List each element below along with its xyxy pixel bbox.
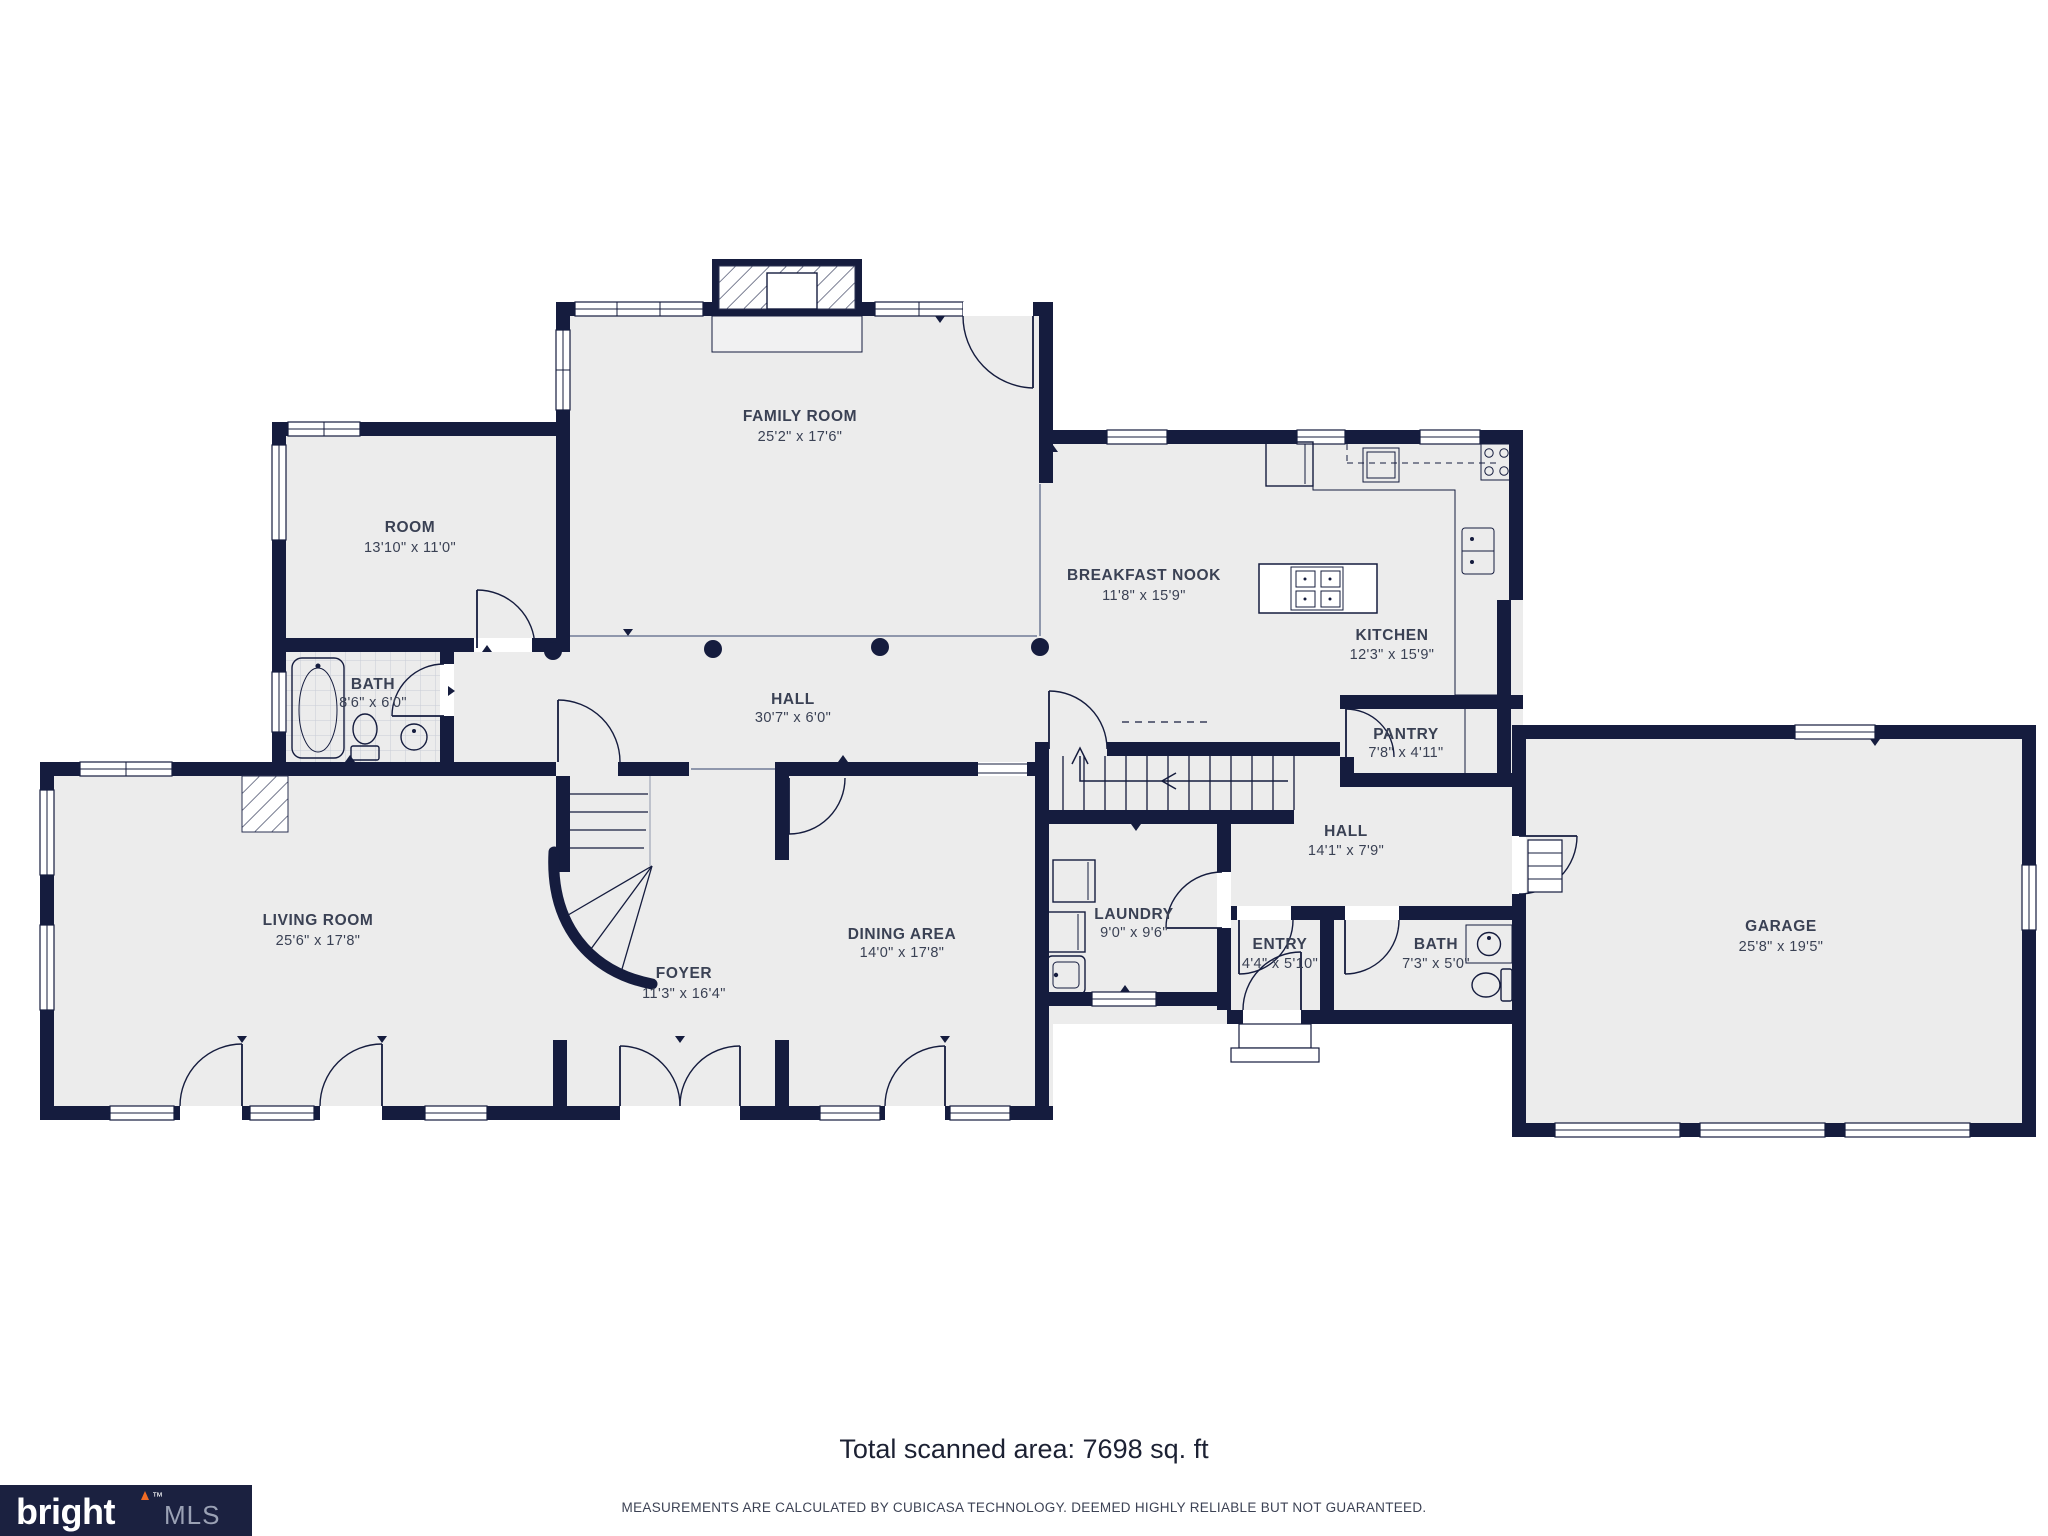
window (575, 302, 703, 316)
window (288, 422, 360, 436)
dims-garage: 25'8" x 19'5" (1739, 939, 1824, 955)
floor-plan-drawing: FAMILY ROOM 25'2" x 17'6" ROOM 13'10" x … (0, 0, 2048, 1536)
dims-bath-hall: 7'3" x 5'0" (1402, 956, 1470, 972)
disclaimer-text: MEASUREMENTS ARE CALCULATED BY CUBICASA … (622, 1500, 1427, 1515)
dims-pantry: 7'8" x 4'11" (1368, 745, 1443, 761)
dims-breakfast-nook: 11'8" x 15'9" (1102, 588, 1186, 604)
window (425, 1106, 487, 1120)
label-family-room: FAMILY ROOM (743, 408, 857, 425)
window (556, 330, 570, 410)
living-room-chimney (242, 776, 288, 832)
dims-hall-rear: 14'1" x 7'9" (1308, 843, 1384, 859)
front-porch-steps (1231, 1024, 1319, 1062)
logo-brand-text: bright (16, 1491, 115, 1532)
window (2022, 865, 2036, 930)
label-bath-hall: BATH (1414, 936, 1458, 953)
dims-room: 13'10" x 11'0" (364, 540, 456, 556)
logo-mls-text: MLS (164, 1500, 220, 1530)
bright-mls-logo: bright ™ MLS (0, 1485, 252, 1536)
window (1092, 992, 1156, 1006)
window (1107, 430, 1167, 444)
label-entry: ENTRY (1253, 936, 1308, 953)
dims-kitchen: 12'3" x 15'9" (1350, 647, 1435, 663)
label-kitchen: KITCHEN (1355, 627, 1428, 644)
label-breakfast-nook: BREAKFAST NOOK (1067, 567, 1221, 584)
window (950, 1106, 1010, 1120)
label-laundry: LAUNDRY (1094, 906, 1173, 923)
window (40, 790, 54, 875)
garage-door (1555, 1123, 1680, 1137)
dims-living-room: 25'6" x 17'8" (276, 933, 361, 949)
window (820, 1106, 880, 1120)
logo-tm-text: ™ (152, 1491, 163, 1503)
window (1795, 725, 1875, 739)
label-pantry: PANTRY (1373, 726, 1439, 743)
label-dining-area: DINING AREA (848, 926, 957, 943)
window (875, 302, 963, 316)
window (250, 1106, 314, 1120)
label-room: ROOM (385, 519, 436, 536)
window (40, 925, 54, 1010)
label-living-room: LIVING ROOM (263, 912, 374, 929)
window (110, 1106, 174, 1120)
total-area-text: Total scanned area: 7698 sq. ft (839, 1434, 1209, 1464)
garage-door (1845, 1123, 1970, 1137)
dims-laundry: 9'0" x 9'6" (1100, 925, 1168, 941)
cased-opening (978, 762, 1027, 776)
kitchen-island (1259, 564, 1377, 613)
window (1420, 430, 1480, 444)
dims-foyer: 11'3" x 16'4" (642, 986, 726, 1002)
dims-dining-area: 14'0" x 17'8" (860, 945, 945, 961)
garage-step (1528, 840, 1562, 892)
dims-hall-main: 30'7" x 6'0" (755, 710, 831, 726)
label-hall-rear: HALL (1324, 823, 1368, 840)
window (80, 762, 172, 776)
window (272, 445, 286, 540)
label-garage: GARAGE (1745, 918, 1817, 935)
window (272, 672, 286, 732)
dims-family-room: 25'2" x 17'6" (758, 429, 843, 445)
dims-entry: 4'4" x 5'10" (1242, 956, 1318, 972)
dims-bath-main: 8'6" x 6'0" (339, 695, 407, 711)
label-hall-main: HALL (771, 691, 815, 708)
garage-door (1700, 1123, 1825, 1137)
fireplace (712, 266, 862, 352)
floor-plan-page: FAMILY ROOM 25'2" x 17'6" ROOM 13'10" x … (0, 0, 2048, 1536)
label-foyer: FOYER (656, 965, 712, 982)
label-bath-main: BATH (351, 676, 395, 693)
